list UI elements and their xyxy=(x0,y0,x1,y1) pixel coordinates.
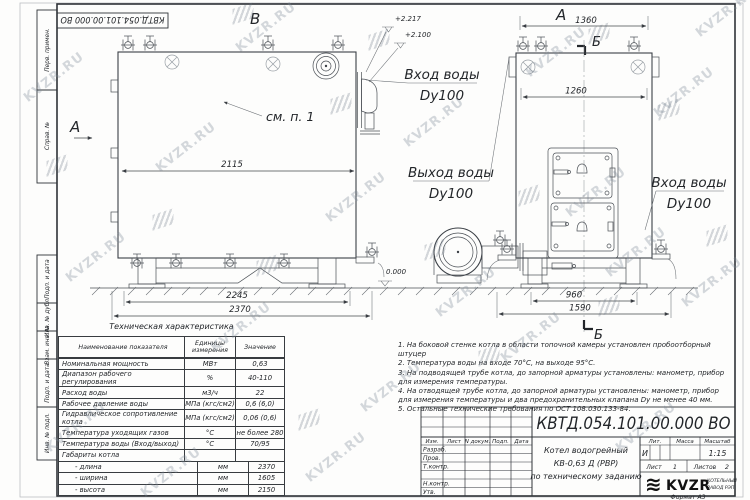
table-row: Диапазон рабочего регулирования%40-110 xyxy=(59,369,284,386)
product-name-line2: КВ-0,63 Д (РВР) xyxy=(554,459,619,468)
drain-valve-icon xyxy=(223,254,237,269)
dim-1590: 1590 xyxy=(569,304,591,314)
col-izm: Изм. xyxy=(426,439,439,445)
water-inlet-dy: Dy100 xyxy=(420,88,464,104)
valve-icon xyxy=(261,36,275,51)
section-label-top: Б xyxy=(592,35,601,50)
kvzr-logo: ≋ KVZR КОТЕЛЬНЫЙ ЗАВОД РЭП xyxy=(645,472,737,496)
col-ndoc: N докум. xyxy=(465,439,491,445)
row-value: 0,63 xyxy=(236,359,284,369)
dim-1360: 1360 xyxy=(575,16,597,26)
position-mark-icon xyxy=(165,55,179,69)
row-tkontr: Т.контр. xyxy=(423,464,449,471)
row-unit: мм xyxy=(198,485,249,495)
side-valve-icon xyxy=(500,240,514,255)
dim-2370: 2370 xyxy=(229,305,251,315)
margin-label: Инв. № подл. xyxy=(45,413,51,453)
row-nkontr: Н.контр. xyxy=(423,481,450,488)
doc-stamp: КВТД.054.101.00.000 ВО xyxy=(57,13,168,28)
row-unit: мм xyxy=(198,473,249,483)
see-item-label: см. п. 1 xyxy=(266,109,314,124)
water-inlet-label: Вход воды xyxy=(404,67,480,83)
view-b-label: В xyxy=(250,10,260,28)
table-row: Габариты котла xyxy=(59,449,284,460)
dim-1260: 1260 xyxy=(565,87,587,97)
row-name: - ширина xyxy=(59,473,198,483)
margin-label: Взам. инв. № xyxy=(45,325,51,364)
row-razrab: Разраб. xyxy=(423,447,447,454)
sheets-label: Листов xyxy=(693,464,717,471)
water-outlet-label: Выход воды xyxy=(408,165,494,181)
water-inlet-right-label: Вход воды xyxy=(651,175,727,191)
row-value: 2150 xyxy=(249,485,284,495)
product-name-line1: Котел водогрейный xyxy=(544,446,628,455)
elevation-top: +2.217 xyxy=(395,15,421,23)
row-value xyxy=(236,450,284,460)
side-valve-icon xyxy=(654,240,668,255)
sheet-label: Лист xyxy=(645,464,662,471)
position-mark-icon xyxy=(266,57,280,71)
title-block: КВТД.054.101.00.000 ВО Изм. Лист N докум… xyxy=(421,407,737,500)
view-a-arrow-label: А xyxy=(69,118,80,136)
col-data: Дата xyxy=(513,439,529,445)
furnace-doors xyxy=(548,148,618,258)
row-value: 1605 xyxy=(249,473,284,483)
logo-sub1: КОТЕЛЬНЫЙ xyxy=(707,477,737,484)
table-row: Температура воды (Вход/выход)°С70/95 xyxy=(59,438,284,449)
row-unit: м3/ч xyxy=(185,387,236,397)
scale-label: Масштаб xyxy=(704,439,731,445)
elevation-mid: +2.100 xyxy=(405,31,431,39)
note-line: 3. На подводящей трубе котла, до запорно… xyxy=(398,369,734,387)
table-row: Рабочее давление водыМПа (кгс/см2)0,6 (6… xyxy=(59,398,284,409)
sheet-value: 1 xyxy=(673,463,677,471)
col-podp: Подп. xyxy=(492,439,509,445)
table-row: Гидравлическое сопротивление котлаМПа (к… xyxy=(59,409,284,426)
row-value: 22 xyxy=(236,387,284,397)
margin-column: Перв. примен. Справ. № Подп. и дата Инв.… xyxy=(37,10,57,460)
doc-number: КВТД.054.101.00.000 ВО xyxy=(537,414,731,433)
row-name: Гидравлическое сопротивление котла xyxy=(59,410,185,426)
water-inlet-right-dy: Dy100 xyxy=(667,196,711,212)
header-unit: Единицы измерения xyxy=(185,337,236,357)
lit-label: Лит. xyxy=(648,439,662,445)
valve-icon xyxy=(627,37,641,52)
note-line: 2. Температура воды на входе 70°С, на вы… xyxy=(398,359,734,368)
row-unit xyxy=(185,450,236,460)
elevation-zero: 0.000 xyxy=(386,268,407,276)
drain-valve-icon xyxy=(130,254,144,269)
sheets-value: 2 xyxy=(725,463,729,471)
coil-icon: ≋ xyxy=(645,472,662,496)
header-value: Значение xyxy=(236,337,284,357)
zero-elevation-mark: 0.000 xyxy=(378,268,407,286)
product-name-line3: по техническому заданию xyxy=(530,472,642,481)
note-line: 5. Остальные технические требования по О… xyxy=(398,405,734,414)
dim-2115: 2115 xyxy=(221,160,243,170)
inlet-pipe-elbow xyxy=(358,72,381,134)
flue-flange xyxy=(313,53,339,79)
valve-icon xyxy=(143,36,157,51)
drain-valve-icon xyxy=(277,254,291,269)
scale-value: 1:15 xyxy=(709,449,727,458)
margin-label: Подп. и дата xyxy=(45,259,51,299)
valve-icon xyxy=(534,37,548,52)
logo-sub2: ЗАВОД РЭП xyxy=(707,485,735,491)
flange-mark-icon xyxy=(521,60,535,74)
valve-icon xyxy=(516,37,530,52)
table-row: Расход водым3/ч22 xyxy=(59,386,284,397)
row-value: 70/95 xyxy=(236,439,284,449)
margin-label: Справ. № xyxy=(45,122,51,150)
margin-label: Подп. и дата xyxy=(45,363,51,403)
table-row: Температура уходящих газов°Сне более 280 xyxy=(59,426,284,437)
row-value: 40-110 xyxy=(236,370,284,386)
duct-valve-icon xyxy=(493,231,507,246)
tech-characteristics-table: Наименование показателя Единицы измерени… xyxy=(58,336,285,496)
table-row: Номинальная мощностьМВт0,63 xyxy=(59,358,284,369)
format-label: Формат А3 xyxy=(670,494,705,500)
row-utv: Утв. xyxy=(423,489,436,496)
table-row: - высотамм2150 xyxy=(59,484,284,495)
technical-notes: 1. На боковой стенке котла в области топ… xyxy=(398,341,734,415)
row-name: Расход воды xyxy=(59,387,185,397)
col-list: Лист xyxy=(446,439,462,445)
row-name: Диапазон рабочего регулирования xyxy=(59,370,185,386)
boiler-front-view: А 1360 Б 1260 xyxy=(487,6,727,343)
row-value: не более 280 xyxy=(236,427,284,437)
row-name: Температура уходящих газов xyxy=(59,427,185,437)
row-unit: МПа (кгс/см2) xyxy=(185,399,236,409)
view-a-label: А xyxy=(555,6,566,24)
water-outlet-dy: Dy100 xyxy=(429,186,473,202)
valve-icon xyxy=(121,36,135,51)
dim-960: 960 xyxy=(566,291,582,301)
row-name: - высота xyxy=(59,485,198,495)
table-row: - длинамм2370 xyxy=(59,461,284,472)
row-name: Габариты котла xyxy=(59,450,185,460)
row-unit: МВт xyxy=(185,359,236,369)
doc-stamp-code: КВТД.054.101.00.000 ВО xyxy=(61,14,165,24)
tech-characteristics-title: Техническая характеристика xyxy=(58,322,285,331)
row-name: Номинальная мощность xyxy=(59,359,185,369)
row-unit: °С xyxy=(185,439,236,449)
row-name: - длина xyxy=(59,462,198,472)
mass-label: Масса xyxy=(676,439,694,445)
note-line: 4. На отводящей трубе котла, до запорной… xyxy=(398,387,734,405)
table-header-row: Наименование показателя Единицы измерени… xyxy=(59,337,284,358)
row-value: 0,06 (0,6) xyxy=(236,410,284,426)
logo-brand: KVZR xyxy=(666,478,711,494)
lit-value: И xyxy=(642,449,648,458)
pipe-labels: Вход воды Dy100 Выход воды Dy100 xyxy=(366,58,509,202)
row-value: 0,6 (6,0) xyxy=(236,399,284,409)
note-line: 1. На боковой стенке котла в области топ… xyxy=(398,341,734,359)
header-name: Наименование показателя xyxy=(59,337,185,357)
boiler-side-view: В А см. п. 1 xyxy=(69,10,384,320)
row-name: Рабочее давление воды xyxy=(59,399,185,409)
margin-label: Перв. примен. xyxy=(45,28,51,72)
row-value: 2370 xyxy=(249,462,284,472)
dim-2245: 2245 xyxy=(226,291,248,301)
row-unit: °С xyxy=(185,427,236,437)
row-unit: МПа (кгс/см2) xyxy=(185,410,236,426)
row-unit: % xyxy=(185,370,236,386)
row-prov: Пров. xyxy=(423,455,441,462)
table-row: - ширинамм1605 xyxy=(59,472,284,483)
blower-fan xyxy=(434,228,547,283)
valve-icon xyxy=(331,36,345,51)
drain-valve-icon xyxy=(169,254,183,269)
flange-mark-icon xyxy=(631,60,645,74)
row-name: Температура воды (Вход/выход) xyxy=(59,439,185,449)
side-valve-icon xyxy=(365,243,379,258)
drawing-sheet: Перв. примен. Справ. № Подп. и дата Инв.… xyxy=(0,0,750,500)
boiler-base xyxy=(129,258,345,288)
row-unit: мм xyxy=(198,462,249,472)
ground-line xyxy=(90,287,698,295)
